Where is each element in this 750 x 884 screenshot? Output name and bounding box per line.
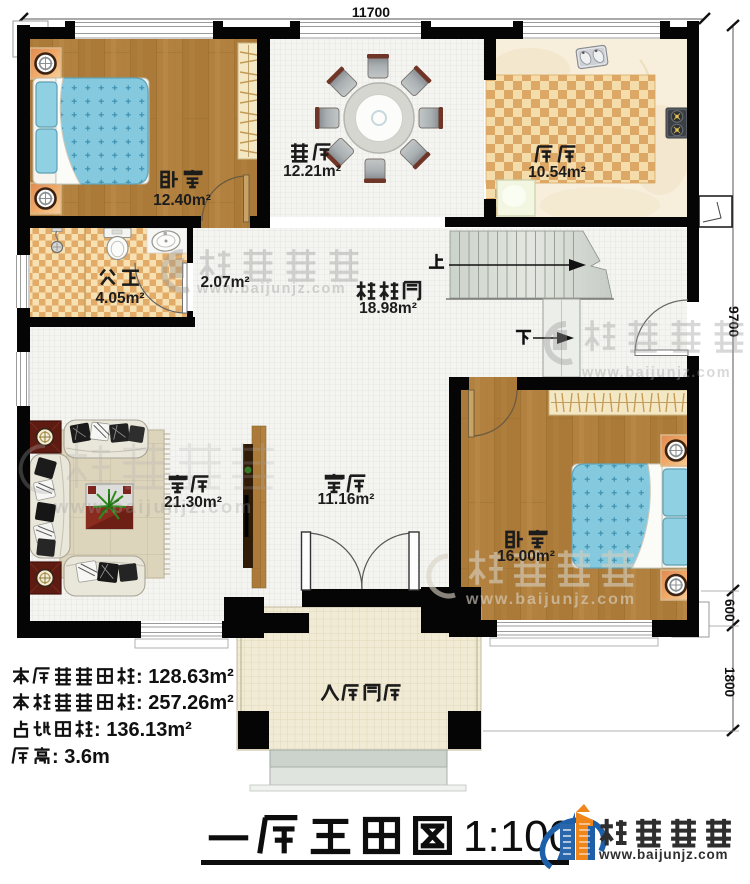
svg-text:1800: 1800 <box>722 667 737 697</box>
svg-text:www.baijunjz.com: www.baijunjz.com <box>598 847 728 862</box>
svg-text:: 128.63m²: : 128.63m² <box>136 666 234 688</box>
svg-text:12.21m²: 12.21m² <box>283 163 341 180</box>
svg-text:1:100: 1:100 <box>463 812 573 861</box>
svg-text:16.00m²: 16.00m² <box>497 548 555 565</box>
svg-text:10.54m²: 10.54m² <box>528 164 586 181</box>
svg-text:2.07m²: 2.07m² <box>200 274 249 291</box>
svg-text:: 257.26m²: : 257.26m² <box>136 692 234 714</box>
svg-text:600: 600 <box>722 599 737 622</box>
svg-text:: 136.13m²: : 136.13m² <box>94 719 192 741</box>
svg-text:www.baijunjz.com: www.baijunjz.com <box>581 365 731 381</box>
svg-text:www.baijunjz.com: www.baijunjz.com <box>53 496 254 517</box>
svg-text:11.16m²: 11.16m² <box>318 491 375 508</box>
svg-text:www.baijunjz.com: www.baijunjz.com <box>465 591 636 608</box>
svg-text:4.05m²: 4.05m² <box>95 290 144 307</box>
svg-text:21.30m²: 21.30m² <box>164 494 222 511</box>
svg-text:: 3.6m: : 3.6m <box>52 746 110 768</box>
svg-text:11700: 11700 <box>352 4 390 20</box>
svg-text:12.40m²: 12.40m² <box>153 192 211 209</box>
svg-text:18.98m²: 18.98m² <box>359 300 417 317</box>
